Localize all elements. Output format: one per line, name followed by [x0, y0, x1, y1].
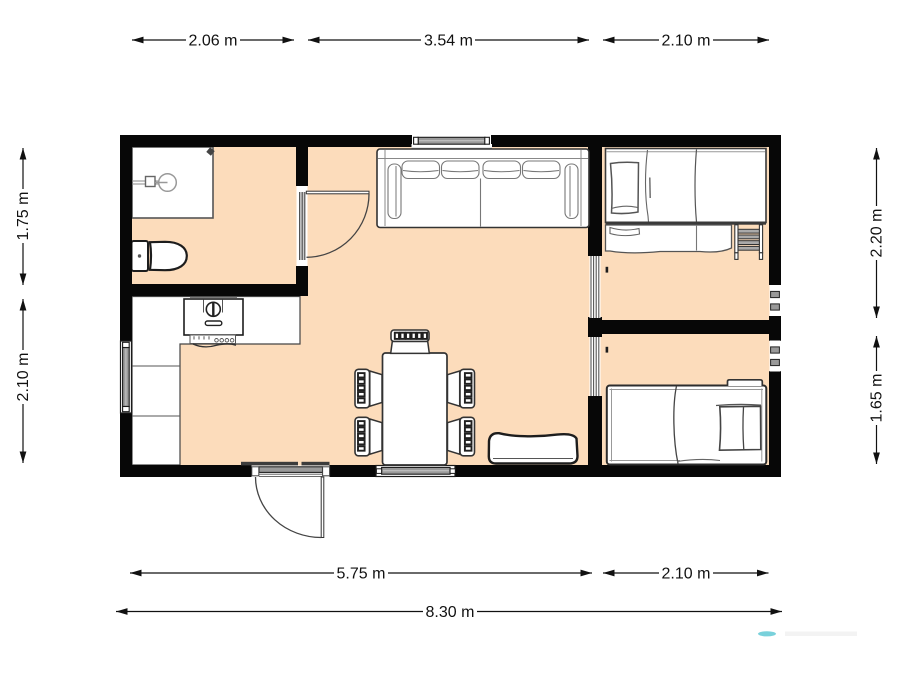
svg-text:2.10 m: 2.10 m — [662, 566, 711, 583]
svg-text:3.54 m: 3.54 m — [424, 33, 473, 50]
svg-text:1.65 m: 1.65 m — [869, 374, 886, 423]
svg-text:1.75 m: 1.75 m — [15, 192, 32, 241]
svg-text:2.10 m: 2.10 m — [662, 33, 711, 50]
svg-text:2.06 m: 2.06 m — [189, 33, 238, 50]
svg-text:5.75 m: 5.75 m — [337, 566, 386, 583]
svg-text:8.30 m: 8.30 m — [426, 604, 475, 621]
svg-text:2.10 m: 2.10 m — [15, 353, 32, 402]
svg-text:2.20 m: 2.20 m — [869, 209, 886, 258]
